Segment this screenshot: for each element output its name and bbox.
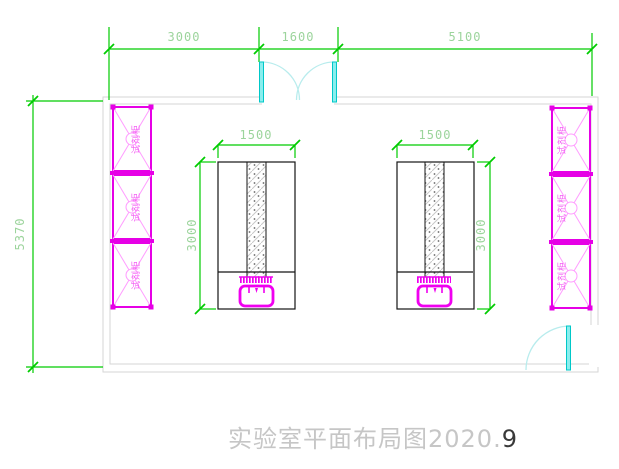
bench-right-shelf-hatch bbox=[425, 162, 444, 277]
door-swing-arc bbox=[262, 62, 300, 100]
door-swing-arc bbox=[297, 62, 335, 100]
bench-left-shelf-hatch bbox=[247, 162, 266, 277]
cabinet-column-left bbox=[110, 105, 154, 310]
cabinet-unit bbox=[552, 108, 590, 172]
sink-grate bbox=[417, 277, 451, 283]
cabinet-unit bbox=[552, 244, 590, 308]
door-leaf bbox=[260, 62, 264, 102]
room-walls bbox=[103, 95, 600, 372]
door-leaf bbox=[333, 62, 337, 102]
door-swing-arc bbox=[526, 326, 570, 370]
floorplan-drawing bbox=[0, 0, 619, 469]
cabinet-column-right bbox=[549, 106, 593, 311]
cabinet-unit bbox=[113, 175, 151, 239]
cabinet-unit bbox=[113, 107, 151, 171]
floorplan-canvas: 3000 1600 5100 5370 1500 1500 3000 3000 … bbox=[0, 0, 619, 469]
door-leaf bbox=[567, 326, 571, 370]
single-door-right bbox=[526, 326, 571, 370]
dimension-lines bbox=[26, 27, 597, 373]
cabinet-unit bbox=[552, 176, 590, 240]
cabinet-unit bbox=[113, 243, 151, 307]
sink-grate bbox=[239, 277, 273, 283]
